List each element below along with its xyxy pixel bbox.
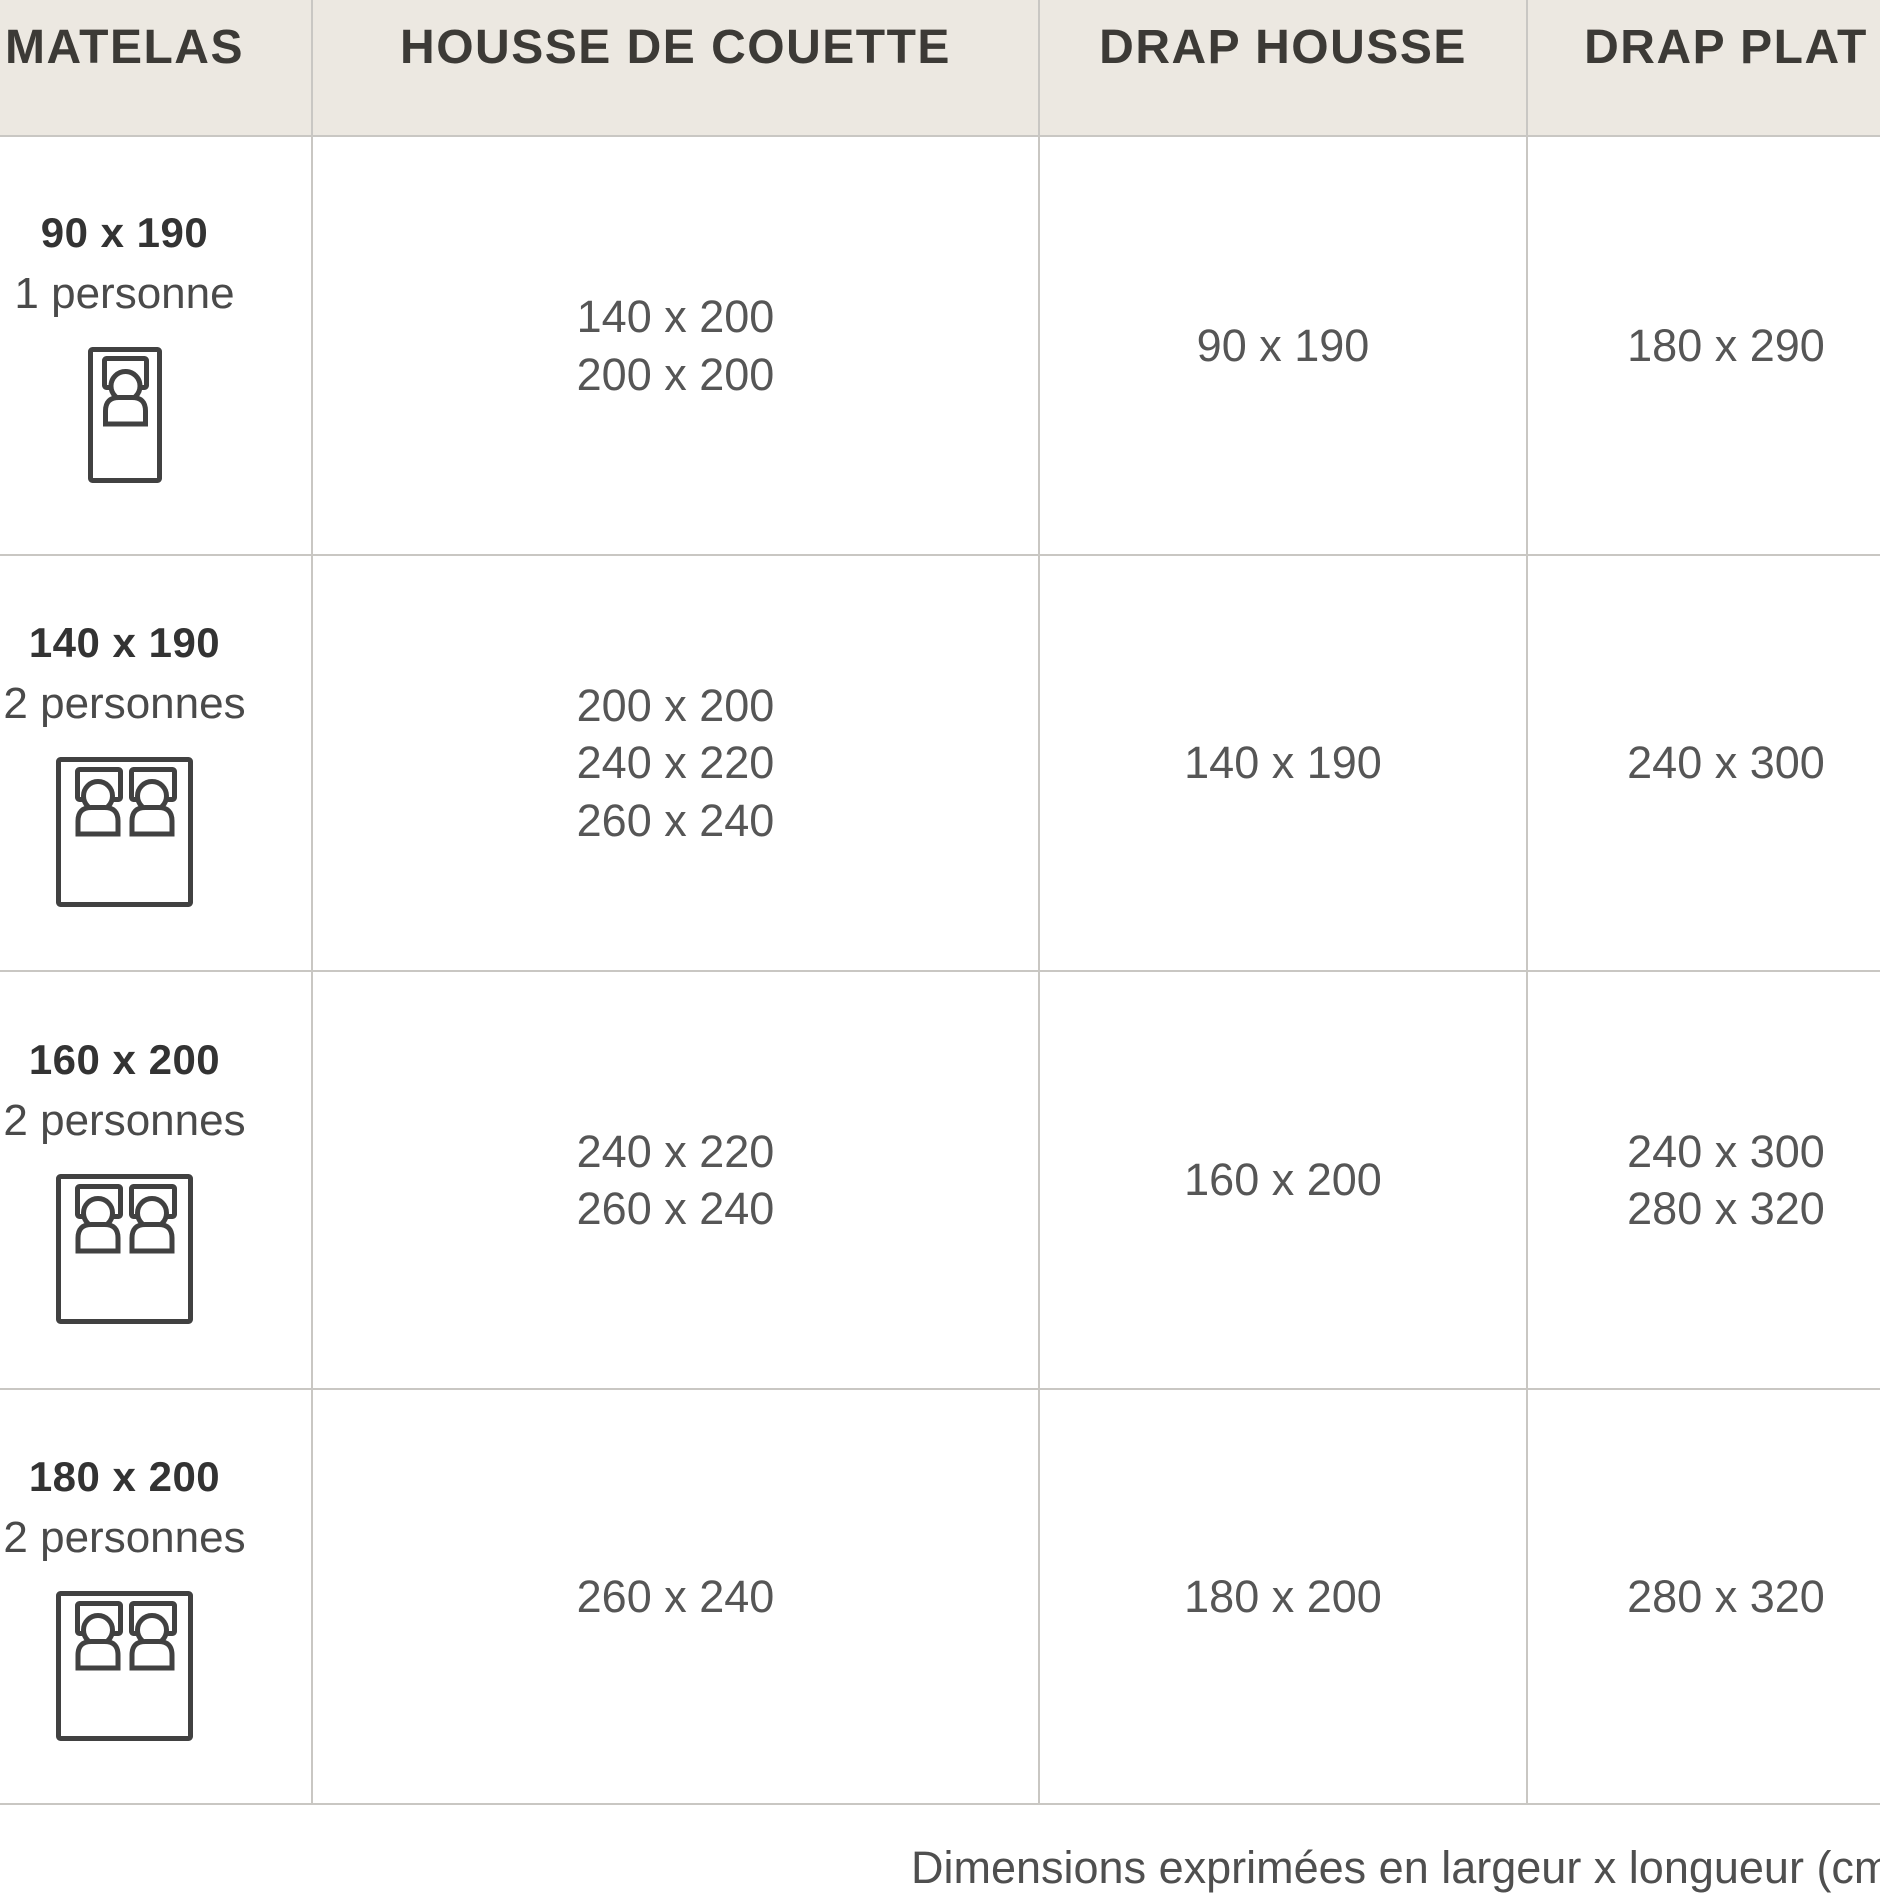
duvet-cover-sizes-cell: 140 x 200 200 x 200 (313, 137, 1040, 556)
mattress-cell: 180 x 200 2 personnes (0, 1390, 313, 1805)
mattress-cell: 160 x 200 2 personnes (0, 972, 313, 1390)
fitted-sheet-size-cell: 140 x 190 (1040, 556, 1528, 972)
size-table-grid: MATELAS HOUSSE DE COUETTE DRAP HOUSSE DR… (0, 0, 1880, 1805)
double-bed-icon (56, 1591, 193, 1741)
column-header-drap-plat: DRAP PLAT (1528, 0, 1880, 137)
flat-sheet-size-cell: 240 x 300 280 x 320 (1528, 972, 1880, 1390)
mattress-capacity-label: 2 personnes (3, 679, 245, 729)
double-bed-icon (56, 1174, 193, 1324)
mattress-size-label: 160 x 200 (29, 1036, 220, 1084)
duvet-cover-sizes-cell: 260 x 240 (313, 1390, 1040, 1805)
fitted-sheet-size-cell: 160 x 200 (1040, 972, 1528, 1390)
mattress-cell: 140 x 190 2 personnes (0, 556, 313, 972)
dimensions-unit-note: Dimensions exprimées en largeur x longue… (911, 1842, 1880, 1894)
double-bed-icon (56, 757, 193, 907)
mattress-capacity-label: 2 personnes (3, 1513, 245, 1563)
mattress-size-label: 140 x 190 (29, 619, 220, 667)
mattress-capacity-label: 2 personnes (3, 1096, 245, 1146)
flat-sheet-size-cell: 180 x 290 (1528, 137, 1880, 556)
size-guide-table: MATELAS HOUSSE DE COUETTE DRAP HOUSSE DR… (0, 0, 1880, 1805)
column-header-matelas: MATELAS (0, 0, 313, 137)
mattress-size-label: 90 x 190 (41, 209, 209, 257)
single-bed-icon (88, 347, 162, 483)
column-header-housse-de-couette: HOUSSE DE COUETTE (313, 0, 1040, 137)
mattress-cell: 90 x 190 1 personne (0, 137, 313, 556)
duvet-cover-sizes-cell: 240 x 220 260 x 240 (313, 972, 1040, 1390)
mattress-capacity-label: 1 personne (14, 269, 234, 319)
column-header-drap-housse: DRAP HOUSSE (1040, 0, 1528, 137)
fitted-sheet-size-cell: 90 x 190 (1040, 137, 1528, 556)
fitted-sheet-size-cell: 180 x 200 (1040, 1390, 1528, 1805)
mattress-size-label: 180 x 200 (29, 1453, 220, 1501)
duvet-cover-sizes-cell: 200 x 200 240 x 220 260 x 240 (313, 556, 1040, 972)
flat-sheet-size-cell: 280 x 320 (1528, 1390, 1880, 1805)
flat-sheet-size-cell: 240 x 300 (1528, 556, 1880, 972)
